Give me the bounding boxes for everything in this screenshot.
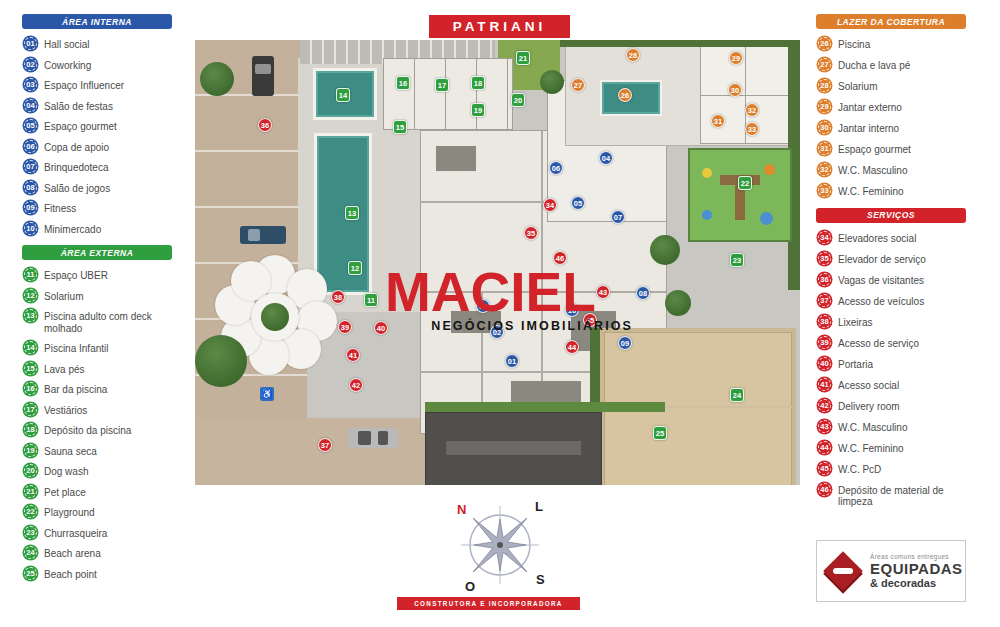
legend-item: 12Solarium [22, 289, 172, 303]
legend-number-badge: 25 [24, 567, 37, 580]
legend-label: Depósito de material de limpeza [838, 483, 966, 508]
legend-label: Bar da piscina [44, 382, 107, 396]
legend-item: 15Lava pés [22, 362, 172, 376]
legend-item: 02Coworking [22, 58, 172, 72]
legend-number-badge: 46 [818, 483, 831, 496]
map-marker-35: 35 [524, 226, 538, 240]
legend-item: 29Jantar externo [816, 100, 966, 114]
legend-label: Solarium [838, 79, 877, 93]
map-marker-11: 11 [364, 293, 378, 307]
legend-item: 41Acesso social [816, 378, 966, 392]
legend-number-badge: 32 [818, 163, 831, 176]
legend-number-badge: 06 [24, 140, 37, 153]
map-marker-29: 29 [729, 51, 743, 65]
map-marker-40: 40 [374, 321, 388, 335]
legend-item: 08Salão de jogos [22, 181, 172, 195]
legend-label: Depósito da piscina [44, 423, 131, 437]
legend-item: 38Lixeiras [816, 315, 966, 329]
legend-number-badge: 19 [24, 444, 37, 457]
legend-header-servicos: SERVIÇOS [816, 208, 966, 223]
legend-number-badge: 39 [818, 336, 831, 349]
legend-number-badge: 44 [818, 441, 831, 454]
tree [261, 303, 289, 331]
hedge [425, 402, 665, 412]
badge-sub-line: & decoradas [870, 577, 963, 589]
parked-car [240, 226, 286, 244]
legend-number-badge: 33 [818, 184, 831, 197]
legend-number-badge: 18 [24, 423, 37, 436]
playground-area [688, 148, 792, 242]
tree [200, 62, 234, 96]
legend-number-badge: 34 [818, 231, 831, 244]
car-window [378, 431, 388, 445]
legend-item: 19Sauna seca [22, 444, 172, 458]
legend-number-badge: 22 [24, 505, 37, 518]
legend-right-panel: LAZER DA COBERTURA 26Piscina27Ducha e la… [816, 14, 966, 515]
legend-number-badge: 24 [24, 546, 37, 559]
compass-north-label: N [457, 502, 466, 517]
legend-header-lazer-cobertura: LAZER DA COBERTURA [816, 14, 966, 29]
legend-header-area-interna: ÁREA INTERNA [22, 14, 172, 29]
map-marker-38: 38 [331, 290, 345, 304]
legend-item: 01Hall social [22, 37, 172, 51]
equipped-decorated-badge: Áreas comuns entregues EQUIPADAS & decor… [816, 540, 966, 602]
legend-item: 32W.C. Masculino [816, 163, 966, 177]
legend-item: 14Piscina Infantil [22, 341, 172, 355]
legend-label: Elevadores social [838, 231, 916, 245]
legend-number-badge: 42 [818, 399, 831, 412]
map-marker-32: 32 [745, 103, 759, 117]
map-marker-26: 26 [618, 88, 632, 102]
legend-item: 35Elevador de serviço [816, 252, 966, 266]
legend-label: W.C. PcD [838, 462, 881, 476]
compass-rose: N L O S [435, 488, 565, 600]
legend-label: Espaço UBER [44, 268, 108, 282]
legend-label: Fitness [44, 201, 76, 215]
legend-number-badge: 01 [24, 37, 37, 50]
legend-label: W.C. Masculino [838, 163, 907, 177]
legend-left-panel: ÁREA INTERNA 01Hall social02Coworking03E… [22, 14, 172, 587]
legend-number-badge: 05 [24, 119, 37, 132]
legend-label: Piscina [838, 37, 870, 51]
legend-item: 22Playground [22, 505, 172, 519]
playground-dot [702, 210, 712, 220]
legend-label: Espaço gourmet [838, 142, 911, 156]
legend-label: Beach point [44, 567, 97, 581]
visitor-parking-area [195, 40, 307, 448]
badge-main-line: EQUIPADAS [870, 561, 963, 578]
legend-label: Sauna seca [44, 444, 97, 458]
legend-section-servicos: SERVIÇOS 34Elevadores social35Elevador d… [816, 208, 966, 508]
legend-item: 44W.C. Feminino [816, 441, 966, 455]
map-marker-45: 45 [583, 313, 597, 327]
legend-number-badge: 28 [818, 79, 831, 92]
legend-label: Piscina Infantil [44, 341, 108, 355]
car-window [358, 431, 371, 445]
map-marker-04: 04 [599, 151, 613, 165]
map-marker-37: 37 [318, 438, 332, 452]
legend-label: Solarium [44, 289, 83, 303]
legend-label: Jantar interno [838, 121, 899, 135]
legend-item: 20Dog wash [22, 464, 172, 478]
legend-label: Espaço gourmet [44, 119, 117, 133]
map-marker-42: 42 [349, 378, 363, 392]
legend-item: 46Depósito de material de limpeza [816, 483, 966, 508]
legend-number-badge: 29 [818, 100, 831, 113]
map-marker-14: 14 [336, 88, 350, 102]
map-marker-02: 02 [490, 325, 504, 339]
legend-list-area-externa: 11Espaço UBER12Solarium13Piscina adulto … [22, 268, 172, 580]
badge-text: Áreas comuns entregues EQUIPADAS & decor… [870, 553, 963, 590]
legend-item: 21Pet place [22, 485, 172, 499]
legend-label: Minimercado [44, 222, 101, 236]
map-marker-46: 46 [553, 251, 567, 265]
playground-dot [764, 164, 775, 175]
map-marker-01: 01 [505, 354, 519, 368]
legend-item: 09Fitness [22, 201, 172, 215]
legend-item: 16Bar da piscina [22, 382, 172, 396]
map-marker-33: 33 [745, 122, 759, 136]
legend-number-badge: 11 [24, 268, 37, 281]
legend-item: 10Minimercado [22, 222, 172, 236]
map-marker-30: 30 [728, 83, 742, 97]
skylight [446, 441, 581, 455]
map-marker-22: 22 [738, 176, 752, 190]
map-marker-44: 44 [565, 340, 579, 354]
badge-top-line: Áreas comuns entregues [870, 553, 963, 560]
legend-label: Lava pés [44, 362, 85, 376]
map-marker-05: 05 [571, 196, 585, 210]
legend-number-badge: 02 [24, 58, 37, 71]
legend-item: 33W.C. Feminino [816, 184, 966, 198]
map-marker-08: 08 [636, 286, 650, 300]
hedge [560, 40, 800, 47]
legend-section-lazer-cobertura: LAZER DA COBERTURA 26Piscina27Ducha e la… [816, 14, 966, 198]
tree [650, 235, 680, 265]
legend-number-badge: 15 [24, 362, 37, 375]
map-marker-28: 28 [626, 48, 640, 62]
legend-number-badge: 35 [818, 252, 831, 265]
map-marker-31: 31 [711, 114, 725, 128]
legend-item: 31Espaço gourmet [816, 142, 966, 156]
legend-label: W.C. Masculino [838, 420, 907, 434]
playground-dot [760, 212, 773, 225]
legend-label: Elevador de serviço [838, 252, 926, 266]
legend-number-badge: 03 [24, 78, 37, 91]
legend-label: Copa de apoio [44, 140, 109, 154]
legend-label: Vagas de visitantes [838, 273, 924, 287]
legend-item: 26Piscina [816, 37, 966, 51]
map-marker-23: 23 [730, 253, 744, 267]
legend-number-badge: 12 [24, 289, 37, 302]
diamond-icon [822, 550, 864, 592]
legend-item: 43W.C. Masculino [816, 420, 966, 434]
legend-item: 11Espaço UBER [22, 268, 172, 282]
legend-number-badge: 37 [818, 294, 831, 307]
legend-number-badge: 31 [818, 142, 831, 155]
map-marker-06: 06 [549, 161, 563, 175]
map-marker-10: 10 [565, 303, 579, 317]
legend-section-area-interna: ÁREA INTERNA 01Hall social02Coworking03E… [22, 14, 172, 235]
legend-label: W.C. Feminino [838, 441, 904, 455]
legend-item: 04Salão de festas [22, 99, 172, 113]
legend-label: Espaço Influencer [44, 78, 124, 92]
map-marker-24: 24 [730, 388, 744, 402]
legend-item: 40Portaria [816, 357, 966, 371]
legend-item: 03Espaço Influencer [22, 78, 172, 92]
legend-label: Delivery room [838, 399, 900, 413]
legend-number-badge: 08 [24, 181, 37, 194]
legend-label: Jantar externo [838, 100, 902, 114]
legend-item: 42Delivery room [816, 399, 966, 413]
moving-car [348, 428, 398, 448]
legend-number-badge: 07 [24, 160, 37, 173]
legend-label: Playground [44, 505, 95, 519]
map-marker-12: 12 [348, 261, 362, 275]
map-marker-03: 03 [476, 299, 490, 313]
map-marker-21: 21 [516, 51, 530, 65]
legend-number-badge: 45 [818, 462, 831, 475]
legend-list-servicos: 34Elevadores social35Elevador de serviço… [816, 231, 966, 508]
legend-number-badge: 40 [818, 357, 831, 370]
legend-item: 23Churrasqueira [22, 526, 172, 540]
map-marker-17: 17 [435, 78, 449, 92]
car-window [255, 64, 271, 74]
map-marker-41: 41 [346, 348, 360, 362]
tree [195, 335, 247, 387]
tree [540, 70, 564, 94]
legend-label: Salão de festas [44, 99, 113, 113]
legend-item: 25Beach point [22, 567, 172, 581]
compass-west-label: O [465, 579, 475, 594]
map-marker-34: 34 [543, 198, 557, 212]
playground-dot [702, 168, 712, 178]
legend-item: 06Copa de apoio [22, 140, 172, 154]
map-marker-19: 19 [471, 103, 485, 117]
compass-east-label: L [535, 499, 543, 514]
legend-item: 30Jantar interno [816, 121, 966, 135]
legend-label: Dog wash [44, 464, 88, 478]
site-plan-page: ÁREA INTERNA 01Hall social02Coworking03E… [0, 0, 1000, 627]
map-marker-13: 13 [345, 206, 359, 220]
legend-item: 07Brinquedoteca [22, 160, 172, 174]
legend-label: Portaria [838, 357, 873, 371]
legend-label: Acesso de serviço [838, 336, 919, 350]
legend-label: Lixeiras [838, 315, 872, 329]
accessible-parking-icon: ♿ [260, 387, 274, 401]
map-marker-15: 15 [393, 120, 407, 134]
service-building [425, 412, 602, 485]
legend-label: Pet place [44, 485, 86, 499]
legend-label: Brinquedoteca [44, 160, 109, 174]
legend-section-area-externa: ÁREA EXTERNA 11Espaço UBER12Solarium13Pi… [22, 245, 172, 580]
legend-item: 45W.C. PcD [816, 462, 966, 476]
legend-label: Salão de jogos [44, 181, 110, 195]
compass-south-label: S [536, 572, 545, 587]
legend-label: Vestiários [44, 403, 87, 417]
map-marker-25: 25 [653, 426, 667, 440]
legend-item: 34Elevadores social [816, 231, 966, 245]
legend-item: 37Acesso de veículos [816, 294, 966, 308]
map-marker-07: 07 [611, 210, 625, 224]
map-marker-36: 36 [258, 118, 272, 132]
legend-number-badge: 20 [24, 464, 37, 477]
legend-number-badge: 14 [24, 341, 37, 354]
legend-item: 18Depósito da piscina [22, 423, 172, 437]
legend-item: 39Acesso de serviço [816, 336, 966, 350]
legend-label: Ducha e lava pé [838, 58, 910, 72]
legend-number-badge: 41 [818, 378, 831, 391]
legend-item: 17Vestiários [22, 403, 172, 417]
project-title: PATRIANI [429, 15, 570, 38]
legend-number-badge: 21 [24, 485, 37, 498]
map-marker-43: 43 [596, 285, 610, 299]
legend-label: Coworking [44, 58, 91, 72]
diamond-bar [833, 568, 853, 574]
legend-number-badge: 09 [24, 201, 37, 214]
map-marker-18: 18 [471, 76, 485, 90]
map-marker-39: 39 [338, 320, 352, 334]
legend-item: 05Espaço gourmet [22, 119, 172, 133]
legend-number-badge: 10 [24, 222, 37, 235]
legend-number-badge: 16 [24, 382, 37, 395]
legend-number-badge: 36 [818, 273, 831, 286]
legend-label: Acesso de veículos [838, 294, 924, 308]
legend-label: Beach arena [44, 546, 101, 560]
legend-item: 27Ducha e lava pé [816, 58, 966, 72]
legend-label: Piscina adulto com deck molhado [44, 309, 172, 334]
legend-number-badge: 30 [818, 121, 831, 134]
map-marker-09: 09 [618, 336, 632, 350]
site-plan-map: ♿ 01020304050607080910111213141516171819… [195, 40, 800, 485]
building-wall [421, 291, 666, 293]
legend-item: 28Solarium [816, 79, 966, 93]
legend-list-area-interna: 01Hall social02Coworking03Espaço Influen… [22, 37, 172, 235]
legend-label: Hall social [44, 37, 90, 51]
tree [665, 290, 691, 316]
map-marker-20: 20 [511, 93, 525, 107]
legend-number-badge: 17 [24, 403, 37, 416]
legend-item: 36Vagas de visitantes [816, 273, 966, 287]
legend-number-badge: 13 [24, 309, 37, 322]
legend-number-badge: 26 [818, 37, 831, 50]
legend-number-badge: 04 [24, 99, 37, 112]
legend-label: Acesso social [838, 378, 899, 392]
map-marker-27: 27 [571, 78, 585, 92]
legend-number-badge: 27 [818, 58, 831, 71]
legend-list-lazer-cobertura: 26Piscina27Ducha e lava pé28Solarium29Ja… [816, 37, 966, 198]
legend-label: Churrasqueira [44, 526, 107, 540]
legend-number-badge: 43 [818, 420, 831, 433]
legend-number-badge: 38 [818, 315, 831, 328]
map-marker-16: 16 [396, 76, 410, 90]
furniture-block [436, 146, 476, 171]
legend-item: 13Piscina adulto com deck molhado [22, 309, 172, 334]
legend-number-badge: 23 [24, 526, 37, 539]
legend-header-area-externa: ÁREA EXTERNA [22, 245, 172, 260]
parked-car [252, 56, 274, 96]
legend-label: W.C. Feminino [838, 184, 904, 198]
legend-item: 24Beach arena [22, 546, 172, 560]
car-window [248, 229, 260, 241]
